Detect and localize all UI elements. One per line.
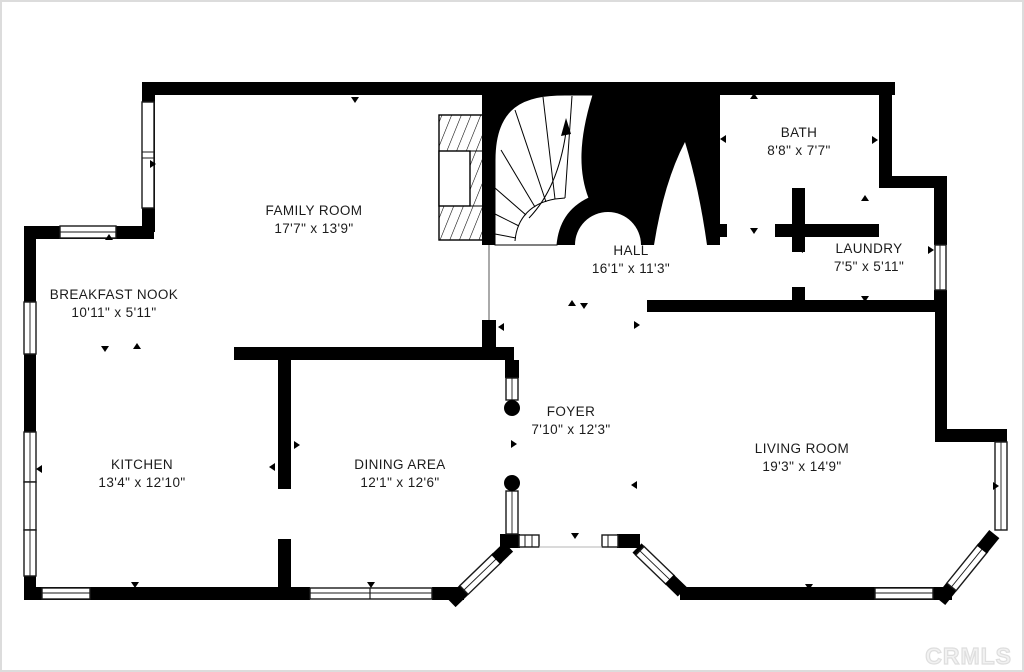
wall-segment <box>278 539 291 600</box>
direction-marker <box>634 321 640 329</box>
floor-plan: FAMILY ROOM 17'7" x 13'9" BATH 8'8" x 7'… <box>0 0 1024 672</box>
direction-marker <box>351 97 359 103</box>
room-label-bath: BATH 8'8" x 7'7" <box>767 124 830 160</box>
window <box>506 378 518 400</box>
room-dims: 10'11" x 5'11" <box>50 304 178 322</box>
window <box>24 482 36 530</box>
fireplace <box>439 115 483 240</box>
room-dims: 13'4" x 12'10" <box>98 474 185 492</box>
room-label-dining-area: DINING AREA 12'1" x 12'6" <box>354 456 445 492</box>
room-label-foyer: FOYER 7'10" x 12'3" <box>531 403 610 439</box>
wall-segment <box>792 188 805 252</box>
wall-segment <box>278 349 291 489</box>
window <box>24 302 36 354</box>
room-name: BREAKFAST NOOK <box>50 286 178 304</box>
direction-marker <box>367 582 375 588</box>
direction-marker <box>861 195 869 201</box>
room-label-kitchen: KITCHEN 13'4" x 12'10" <box>98 456 185 492</box>
room-label-laundry: LAUNDRY 7'5" x 5'11" <box>834 240 904 276</box>
room-name: FAMILY ROOM <box>266 202 363 220</box>
room-name: DINING AREA <box>354 456 445 474</box>
watermark-crmls: CRMLS <box>925 643 1012 670</box>
window <box>310 588 432 599</box>
direction-marker <box>580 303 588 309</box>
room-label-breakfast-nook: BREAKFAST NOOK 10'11" x 5'11" <box>50 286 178 322</box>
direction-marker <box>928 246 934 254</box>
window <box>42 588 90 599</box>
room-label-hall: HALL 16'1" x 11'3" <box>592 242 670 278</box>
bay-window-living <box>935 530 999 605</box>
floor-plan-drawing <box>2 2 1024 672</box>
direction-marker <box>750 228 758 234</box>
room-dims: 19'3" x 14'9" <box>755 458 849 476</box>
column <box>504 475 520 491</box>
room-name: LAUNDRY <box>834 240 904 258</box>
window <box>875 588 933 599</box>
direction-marker <box>631 481 637 489</box>
room-name: LIVING ROOM <box>755 440 849 458</box>
wall-segment <box>617 534 640 548</box>
wall-segment <box>775 224 879 237</box>
direction-marker <box>133 343 141 349</box>
wall-segment <box>879 82 892 188</box>
direction-marker <box>568 300 576 306</box>
room-dims: 8'8" x 7'7" <box>767 142 830 160</box>
room-name: FOYER <box>531 403 610 421</box>
room-name: HALL <box>592 242 670 260</box>
wall-segment <box>234 347 514 360</box>
room-dims: 7'10" x 12'3" <box>531 421 610 439</box>
window <box>142 102 154 208</box>
direction-marker <box>294 441 300 449</box>
room-dims: 12'1" x 12'6" <box>354 474 445 492</box>
window <box>519 535 539 547</box>
direction-marker <box>872 136 878 144</box>
bay-window-entry-left <box>447 542 514 607</box>
room-label-family-room: FAMILY ROOM 17'7" x 13'9" <box>266 202 363 238</box>
wall-segment <box>24 350 36 436</box>
room-name: KITCHEN <box>98 456 185 474</box>
bay-window-entry-right <box>632 543 686 596</box>
direction-marker <box>511 440 517 448</box>
direction-marker <box>269 463 275 471</box>
room-dims: 7'5" x 5'11" <box>834 258 904 276</box>
direction-marker <box>720 135 726 143</box>
window <box>602 535 618 547</box>
direction-marker <box>36 465 42 473</box>
column <box>504 400 520 416</box>
window <box>935 245 946 290</box>
window <box>24 432 36 482</box>
window <box>506 491 518 534</box>
wall-segment <box>24 226 36 306</box>
room-dims: 17'7" x 13'9" <box>266 220 363 238</box>
wall-segment <box>647 300 947 312</box>
wall-segment <box>935 429 1007 442</box>
direction-marker <box>101 346 109 352</box>
wall-segment <box>505 360 519 378</box>
room-label-living-room: LIVING ROOM 19'3" x 14'9" <box>755 440 849 476</box>
direction-marker <box>571 533 579 539</box>
direction-marker <box>498 323 504 331</box>
room-dims: 16'1" x 11'3" <box>592 260 670 278</box>
firebox <box>439 151 470 206</box>
wall-segment <box>482 320 496 350</box>
wall-segment <box>934 176 947 245</box>
window <box>24 530 36 576</box>
room-name: BATH <box>767 124 830 142</box>
staircase <box>482 82 720 320</box>
wall-segment <box>935 300 947 442</box>
